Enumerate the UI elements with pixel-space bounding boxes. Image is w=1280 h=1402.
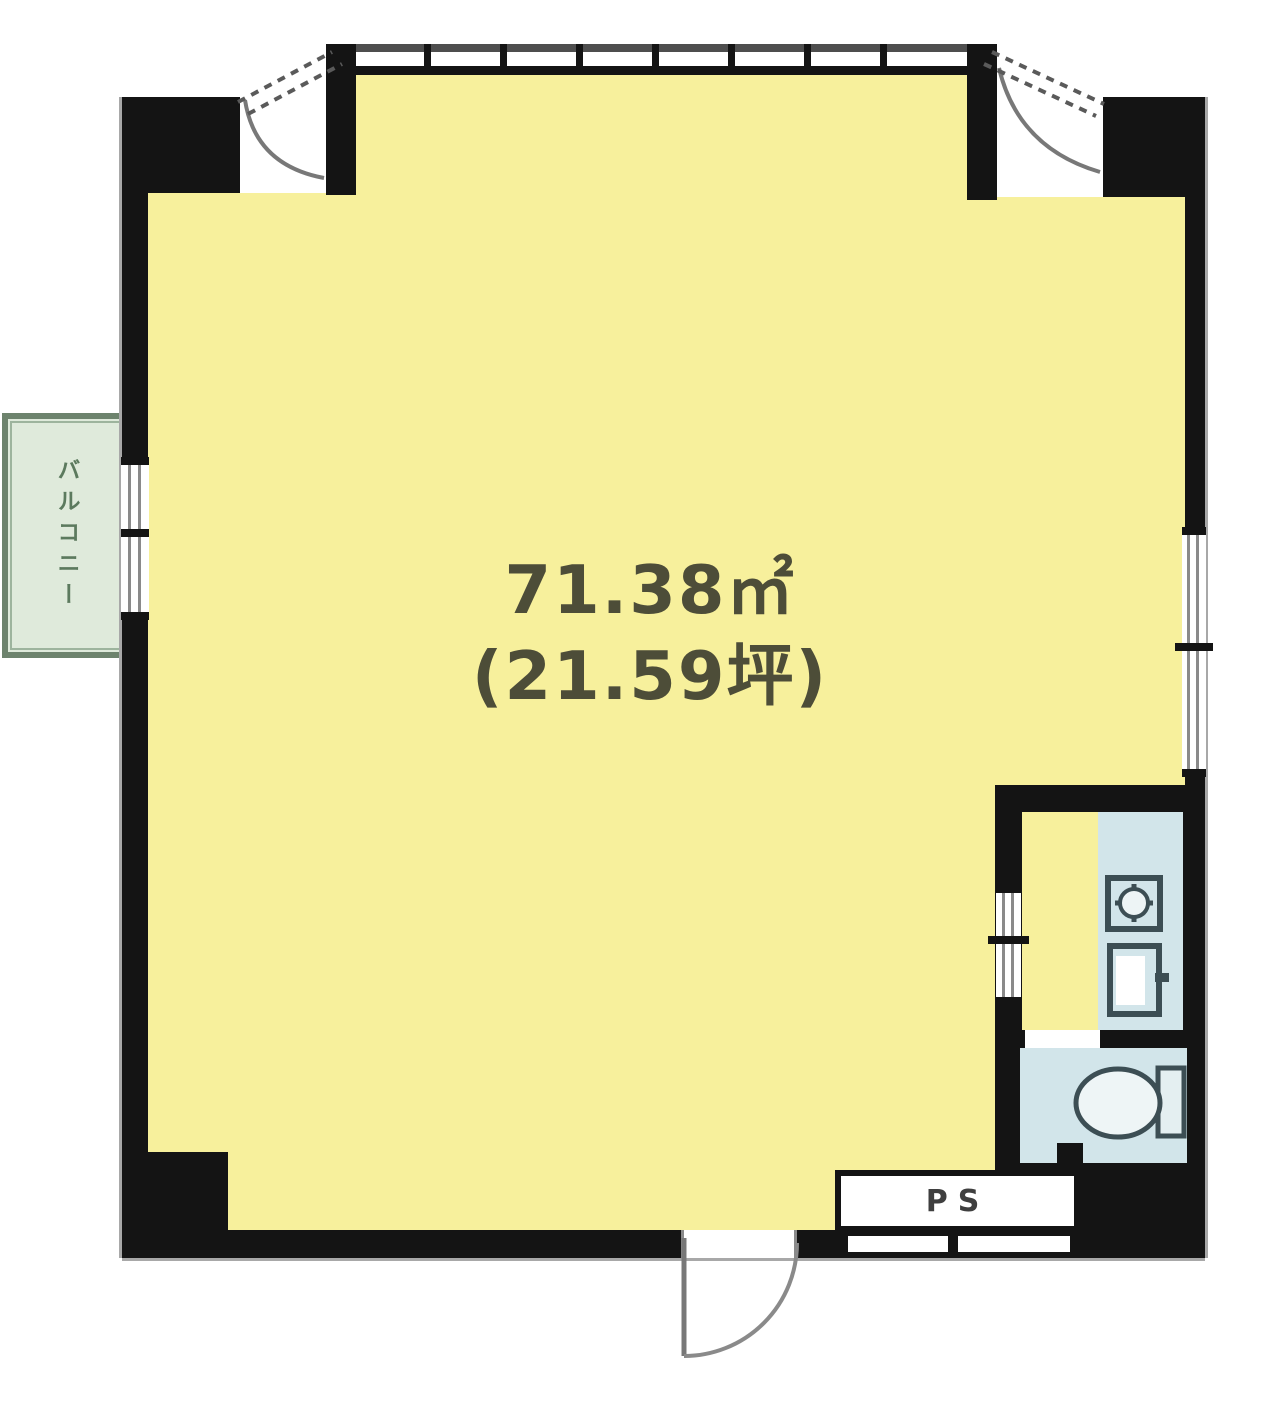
floor-plan-canvas: バルコニー bbox=[0, 0, 1280, 1402]
casement-window-right-icon bbox=[984, 52, 1104, 172]
swing-arcs-overlay bbox=[0, 0, 1280, 1402]
casement-window-left-icon bbox=[238, 52, 342, 178]
balcony-label: バルコニー bbox=[49, 458, 83, 613]
entry-door-swing-icon bbox=[684, 1238, 797, 1356]
